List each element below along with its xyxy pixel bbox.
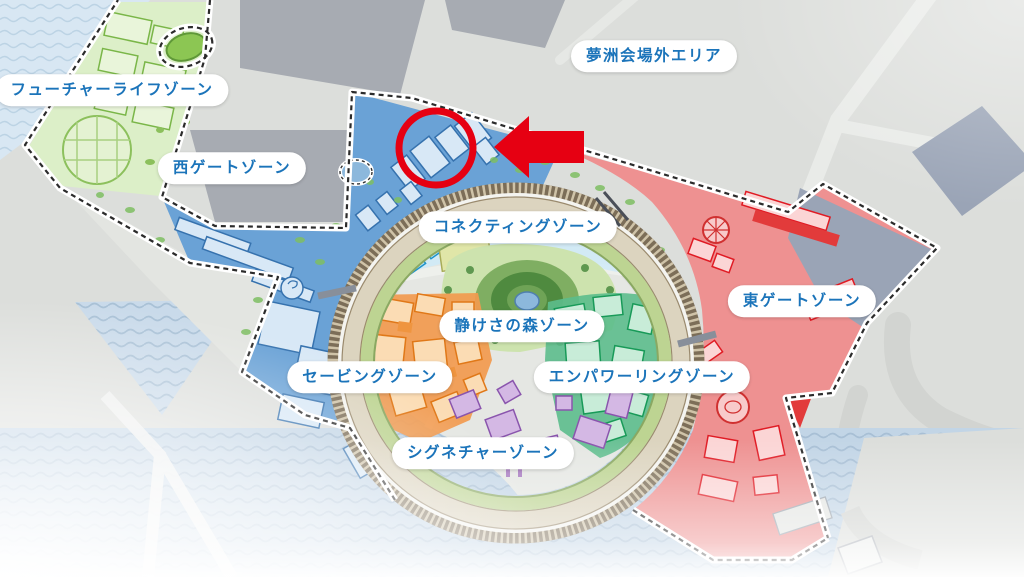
zone-label-west-gate: 西ゲートゾーン — [158, 152, 306, 184]
zone-label-east-gate: 東ゲートゾーン — [728, 285, 876, 317]
outside-area-label: 夢洲会場外エリア — [571, 40, 737, 72]
zone-label-empowering: エンパワーリングゾーン — [534, 361, 750, 393]
zone-label-saving: セービングゾーン — [287, 361, 452, 393]
zone-label-quiet-forest: 静けさの森ゾーン — [439, 310, 604, 342]
zone-label-signature: シグネチャーゾーン — [392, 437, 574, 469]
zone-label-future-life: フューチャーライフゾーン — [0, 74, 229, 106]
zone-label-connecting: コネクティングゾーン — [419, 211, 617, 243]
expo-venue-map: フューチャーライフゾーン 西ゲートゾーン 夢洲会場外エリア コネクティングゾーン… — [0, 0, 1024, 577]
